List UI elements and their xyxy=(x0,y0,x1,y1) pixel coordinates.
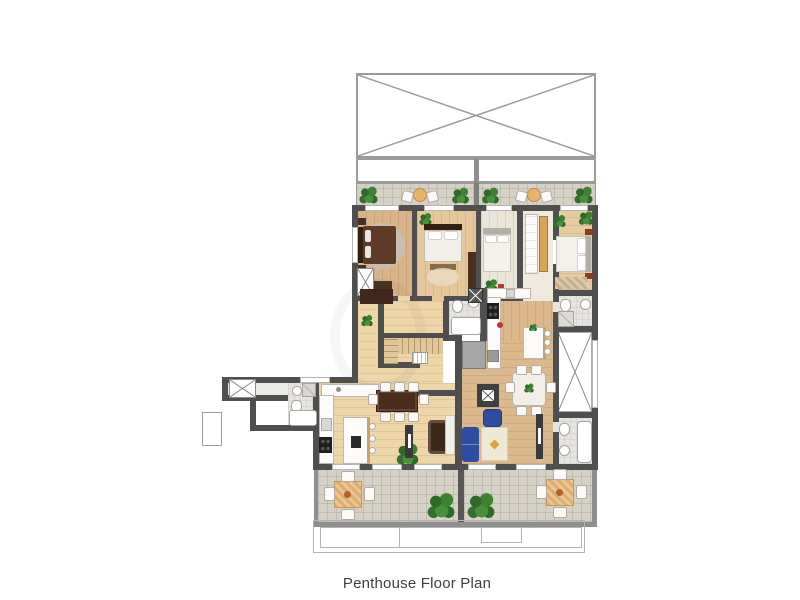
window xyxy=(592,340,598,408)
bar-stool xyxy=(544,330,551,337)
bedroom-d-rug xyxy=(555,277,587,289)
balcony-outline-small xyxy=(481,527,522,543)
bed-pillow xyxy=(365,246,371,258)
wing-shower xyxy=(302,383,316,397)
dining-chair xyxy=(380,382,391,392)
dining-chair xyxy=(394,382,405,392)
dining-chair xyxy=(419,394,429,405)
stove xyxy=(487,303,499,319)
bar-stool xyxy=(544,348,551,355)
patio-chair xyxy=(364,487,375,501)
hall-wardrobe xyxy=(539,216,548,272)
patio-chair xyxy=(324,487,335,501)
bedroom-b-rug xyxy=(427,268,459,286)
patio-chair xyxy=(341,471,355,482)
terrace-border-left xyxy=(314,470,318,527)
bar-stool xyxy=(544,339,551,346)
kitchen-island-right xyxy=(523,327,546,359)
dining-chair xyxy=(394,412,405,422)
dining-chair xyxy=(368,394,378,405)
top-terrace-plant-center-left xyxy=(450,185,471,206)
terrace-border-right xyxy=(592,470,597,527)
kettle xyxy=(497,322,503,328)
toilet xyxy=(452,300,463,313)
floor-plan-canvas: Penthouse Floor Plan xyxy=(0,0,800,600)
bar-stool xyxy=(369,423,376,430)
top-terrace-plant-left xyxy=(357,184,380,206)
balcony-outline-divider xyxy=(399,527,400,548)
door-gap xyxy=(432,296,444,301)
sink xyxy=(559,445,570,456)
dining-chair xyxy=(516,406,527,416)
sofa-white xyxy=(445,415,455,455)
kitchen-sink xyxy=(506,289,515,298)
bathtub xyxy=(577,421,592,463)
plan-caption: Penthouse Floor Plan xyxy=(312,575,522,592)
wall xyxy=(553,412,598,418)
window xyxy=(365,205,399,211)
armchair-blue xyxy=(483,409,502,427)
stairs-left-flight xyxy=(384,338,398,364)
shaft-cross-lines xyxy=(558,332,592,412)
utility-gray-box xyxy=(462,341,486,369)
dining-table-left xyxy=(376,390,418,412)
top-terrace-plant-right xyxy=(572,184,595,206)
stove-left xyxy=(319,437,332,453)
bedroom-d-plant-2 xyxy=(552,213,567,229)
bar-stool xyxy=(369,447,376,454)
top-terrace-plant-center-right xyxy=(480,185,501,206)
wall xyxy=(553,290,598,296)
duct-shaft xyxy=(468,288,483,303)
hall-closet xyxy=(525,214,538,274)
faucet xyxy=(336,387,341,392)
hall-plant xyxy=(360,313,374,328)
dining-chair xyxy=(505,382,515,393)
kitchen-sink-left xyxy=(321,418,332,431)
wing-shaft xyxy=(229,379,256,398)
balcony-outline-inner xyxy=(320,527,582,548)
bed-pillow xyxy=(485,235,497,243)
sink xyxy=(580,299,591,310)
bed-pillow xyxy=(497,235,509,243)
roof-open-area xyxy=(356,73,596,158)
patio-chair xyxy=(536,485,547,499)
entry-landing xyxy=(202,412,222,446)
fireplace-insert xyxy=(482,390,494,401)
island-cooktop xyxy=(351,436,361,448)
sink xyxy=(292,386,302,396)
shower xyxy=(558,311,574,327)
patio-chair xyxy=(576,485,587,499)
dining-chair xyxy=(546,382,556,393)
window xyxy=(424,205,454,211)
bistro-table-right xyxy=(527,188,541,202)
terrace-divider xyxy=(458,470,464,522)
patio-chair xyxy=(553,469,567,480)
right-shaft xyxy=(558,332,592,412)
bed-pillow xyxy=(428,231,442,240)
bedroom-d-plant xyxy=(577,209,595,227)
bathtub xyxy=(289,410,317,426)
bar-stool xyxy=(369,435,376,442)
nightstand xyxy=(585,229,593,235)
wall xyxy=(476,205,481,301)
stairs-vent-box xyxy=(412,352,428,364)
terrace-palm-right xyxy=(464,489,498,522)
bed-pillow xyxy=(365,230,371,242)
patio-chair xyxy=(341,509,355,520)
fireplace-unit xyxy=(477,384,499,407)
wall xyxy=(517,210,523,296)
nightstand xyxy=(358,218,366,225)
top-terrace-divider xyxy=(474,183,479,207)
sofa-blue xyxy=(462,427,479,462)
door-gap xyxy=(398,296,410,301)
dining-chair xyxy=(531,365,542,375)
toilet xyxy=(559,423,570,436)
dining-chair xyxy=(380,412,391,422)
bedroom-a-chest xyxy=(360,289,393,304)
bed-pillow xyxy=(577,238,586,254)
upper-band-divider xyxy=(474,158,479,183)
bathtub xyxy=(451,317,481,335)
tv-screen xyxy=(538,428,541,444)
bed-pillow xyxy=(577,255,586,271)
bed-pillow xyxy=(444,231,458,240)
patio-chair xyxy=(553,507,567,518)
bistro-table-left xyxy=(413,188,427,202)
terrace-palm-left xyxy=(424,489,458,522)
window xyxy=(486,205,512,211)
dining-chair xyxy=(408,412,419,422)
tv-screen-left xyxy=(408,434,411,448)
dining-chair xyxy=(516,365,527,375)
patio-table-center xyxy=(556,489,563,496)
roof-cross-lines xyxy=(358,75,594,156)
island-plant xyxy=(528,323,538,332)
table-centerpiece xyxy=(523,382,535,394)
wall xyxy=(592,205,598,470)
dining-chair xyxy=(408,382,419,392)
wall xyxy=(412,210,417,301)
dishwasher xyxy=(487,350,499,362)
patio-table-center xyxy=(344,491,351,498)
wall xyxy=(455,335,462,464)
